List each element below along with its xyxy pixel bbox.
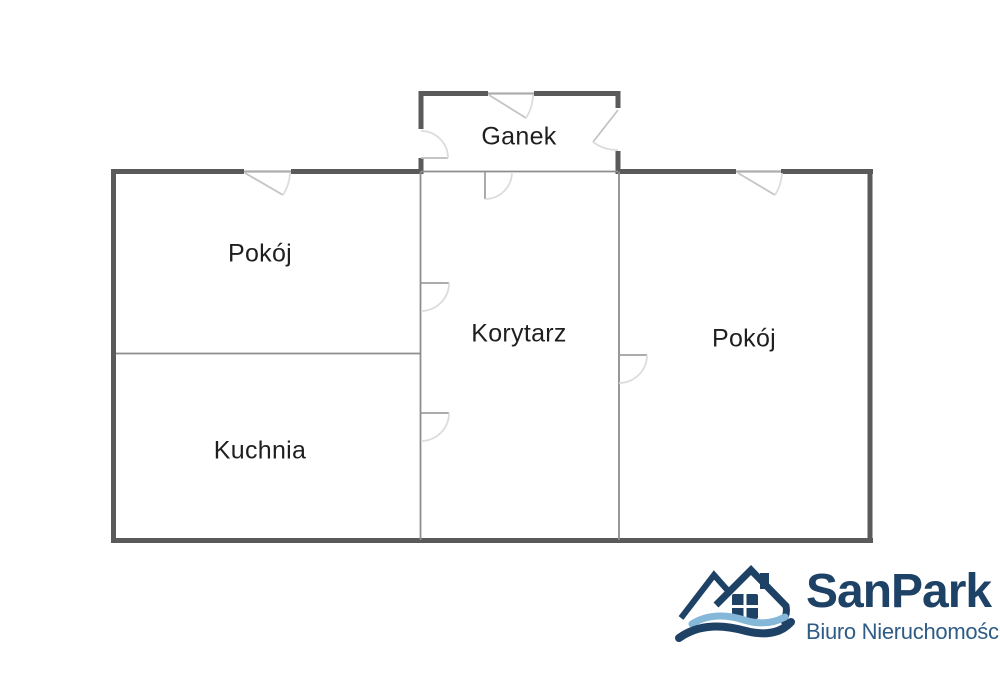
partition-walls xyxy=(116,172,619,541)
ganek-left-door-swing-icon xyxy=(421,131,448,158)
pokoj-left-window-icon xyxy=(245,173,290,195)
logo-subtitle: Biuro Nieruchomości xyxy=(806,619,1000,645)
house-with-waves-icon xyxy=(674,558,802,656)
ganek-top-window-icon xyxy=(489,95,533,118)
logo-text-block: SanPark Biuro Nieruchomości xyxy=(806,568,1000,645)
sanpark-logo: SanPark Biuro Nieruchomości xyxy=(674,558,1000,668)
room-label-ganek: Ganek xyxy=(481,123,556,152)
ganek-right-door-swing-icon xyxy=(593,110,618,150)
pokoj-right-door-swing-icon xyxy=(619,355,647,383)
logo-title: SanPark xyxy=(806,568,1000,616)
entry-door-swing-icon xyxy=(485,172,512,199)
room-label-korytarz: Korytarz xyxy=(471,320,566,349)
floorplan-page: Ganek Pokój Korytarz Pokój Kuchnia SanPa… xyxy=(0,0,1000,675)
room-label-kuchnia: Kuchnia xyxy=(214,437,306,466)
pokoj-right-window-icon xyxy=(738,173,782,195)
room-label-pokoj-left: Pokój xyxy=(228,240,292,269)
room-label-pokoj-right: Pokój xyxy=(712,325,776,354)
kuchnia-door-swing-icon xyxy=(421,413,449,441)
exterior-walls xyxy=(111,91,873,543)
door-swings xyxy=(421,110,647,441)
pokoj-left-door-swing-icon xyxy=(421,283,449,311)
